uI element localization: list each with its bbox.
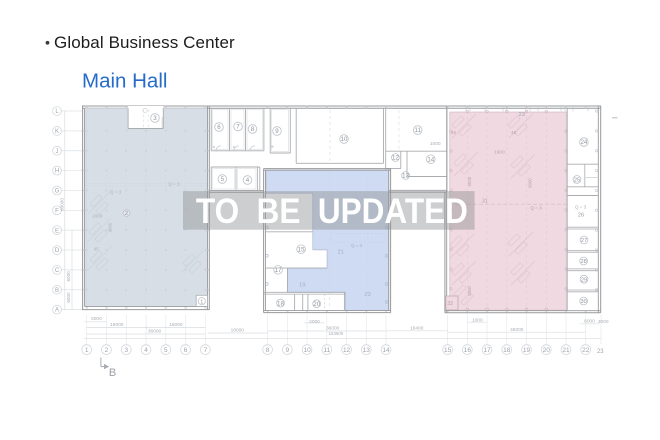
svg-text:6000: 6000 — [467, 285, 472, 295]
svg-text:18000: 18000 — [110, 322, 124, 328]
svg-text:36000: 36000 — [148, 329, 162, 335]
svg-text:45: 45 — [94, 247, 99, 252]
svg-text:6000: 6000 — [584, 319, 595, 325]
svg-text:18000: 18000 — [231, 328, 245, 334]
svg-text:15: 15 — [298, 246, 305, 253]
svg-text:14: 14 — [427, 156, 434, 163]
svg-text:23: 23 — [597, 349, 604, 355]
svg-text:1900: 1900 — [494, 150, 505, 156]
svg-text:3000: 3000 — [598, 319, 609, 325]
svg-text:20: 20 — [543, 347, 551, 354]
svg-text:22: 22 — [364, 292, 370, 298]
svg-text:23: 23 — [518, 112, 524, 118]
svg-text:28: 28 — [580, 259, 586, 265]
svg-text:18: 18 — [503, 347, 511, 354]
svg-text:19: 19 — [299, 283, 305, 289]
svg-text:27: 27 — [581, 238, 587, 244]
svg-text:H: H — [55, 169, 59, 175]
svg-text:14: 14 — [382, 347, 390, 354]
svg-text:26: 26 — [578, 213, 584, 219]
svg-text:TO BE UPDATED: TO BE UPDATED — [196, 192, 468, 231]
svg-text:16: 16 — [464, 347, 472, 354]
svg-text:22: 22 — [582, 347, 590, 354]
svg-text:Global Business Center: Global Business Center — [54, 33, 235, 52]
svg-text:11: 11 — [414, 127, 421, 134]
svg-text:D: D — [55, 248, 60, 254]
svg-text:6000: 6000 — [527, 178, 532, 188]
svg-text:6000: 6000 — [467, 176, 472, 186]
svg-text:13: 13 — [363, 347, 371, 354]
svg-text:18000: 18000 — [169, 322, 183, 328]
svg-text:J: J — [56, 149, 59, 155]
svg-text:Q = 3: Q = 3 — [351, 243, 363, 248]
svg-text:3: 3 — [153, 115, 157, 122]
svg-text:4: 4 — [144, 347, 148, 354]
svg-text:1000: 1000 — [430, 141, 441, 147]
svg-text:9000: 9000 — [108, 222, 113, 232]
svg-text:Q = 3: Q = 3 — [110, 190, 122, 195]
svg-text:12: 12 — [392, 155, 399, 162]
svg-text:12: 12 — [343, 347, 351, 354]
svg-text:C: C — [55, 268, 60, 274]
svg-text:8: 8 — [266, 347, 270, 354]
svg-text:29: 29 — [581, 277, 587, 283]
svg-text:G: G — [55, 189, 60, 195]
svg-text:6000: 6000 — [91, 316, 102, 322]
svg-text:6: 6 — [184, 347, 188, 354]
svg-text:6: 6 — [217, 124, 221, 131]
svg-text:2000: 2000 — [92, 214, 103, 219]
svg-text:K: K — [55, 129, 59, 135]
svg-text:7: 7 — [236, 124, 240, 131]
svg-text:20: 20 — [313, 301, 320, 308]
svg-text:2: 2 — [105, 347, 109, 354]
svg-text:B: B — [109, 367, 116, 379]
svg-text:6000: 6000 — [66, 292, 71, 303]
svg-text:24: 24 — [580, 139, 587, 146]
svg-text:15: 15 — [444, 347, 452, 354]
svg-text:45: 45 — [511, 130, 516, 135]
svg-text:45000: 45000 — [510, 327, 524, 333]
svg-text:2000: 2000 — [309, 319, 320, 325]
svg-text:17: 17 — [275, 267, 282, 274]
svg-text:4: 4 — [246, 177, 250, 184]
svg-text:10: 10 — [303, 347, 311, 354]
svg-text:1000: 1000 — [472, 318, 483, 324]
svg-text:5: 5 — [164, 347, 168, 354]
svg-text:19: 19 — [523, 347, 531, 354]
svg-text:32: 32 — [447, 301, 453, 307]
svg-text:9: 9 — [286, 347, 290, 354]
svg-text:E: E — [55, 228, 59, 234]
svg-text:8: 8 — [251, 126, 255, 133]
svg-text:Main Hall: Main Hall — [82, 69, 167, 92]
svg-text:30: 30 — [580, 299, 586, 305]
svg-text:7: 7 — [204, 347, 208, 354]
svg-text:11: 11 — [323, 347, 330, 354]
svg-text:60000: 60000 — [60, 198, 65, 211]
svg-text:A: A — [55, 308, 59, 314]
svg-text:10: 10 — [341, 136, 348, 143]
svg-text:Q = 3: Q = 3 — [168, 181, 180, 186]
svg-text:18400: 18400 — [410, 325, 424, 331]
svg-text:B: B — [55, 288, 59, 294]
svg-text:18: 18 — [277, 300, 284, 307]
svg-text:9: 9 — [275, 128, 279, 135]
svg-text:2: 2 — [125, 211, 128, 217]
svg-text:153600: 153600 — [329, 331, 344, 336]
svg-text:1: 1 — [85, 347, 89, 354]
svg-text:21: 21 — [562, 347, 570, 354]
svg-text:25: 25 — [574, 178, 580, 184]
svg-text:31: 31 — [482, 198, 488, 204]
svg-text:13: 13 — [402, 173, 409, 180]
svg-text:Q = 3: Q = 3 — [530, 206, 542, 211]
svg-text:5: 5 — [221, 176, 225, 183]
svg-text:21: 21 — [337, 250, 343, 256]
svg-text:1: 1 — [200, 299, 203, 305]
svg-text:17: 17 — [483, 347, 491, 354]
svg-text:6000: 6000 — [66, 271, 71, 282]
svg-text:3: 3 — [124, 347, 128, 354]
svg-text:Q = 3: Q = 3 — [575, 205, 587, 210]
